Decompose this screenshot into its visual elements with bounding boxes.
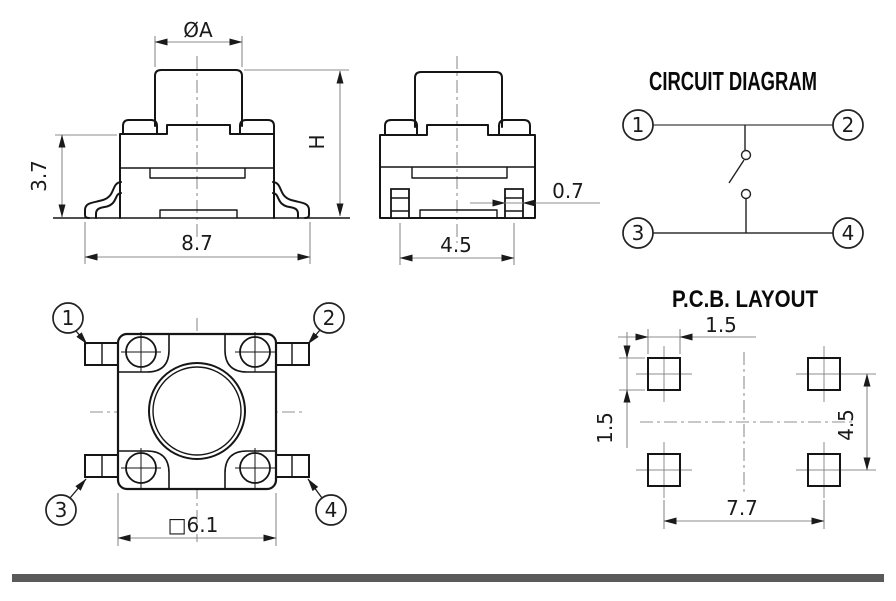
- tact-switch-datasheet-drawing: ØA 3.7 8.7 H 0.7: [0, 0, 896, 601]
- terminal-4: 4: [833, 218, 863, 248]
- terminal-2: 2: [833, 110, 863, 140]
- side-bottom-pad: [420, 210, 497, 218]
- leader-line: [308, 479, 322, 498]
- dim-total-height: H: [244, 70, 349, 216]
- side-view: 0.7 4.5: [380, 56, 600, 265]
- pcb-layout: P.C.B. LAYOUT 1.5 1.5 4.5 7.7: [593, 286, 876, 529]
- pin-callout-1: 1: [53, 303, 87, 344]
- dim-label-body-height: 3.7: [27, 160, 51, 192]
- front-plunger: [155, 70, 242, 126]
- pin-callout-3: 3: [46, 479, 86, 525]
- switch-contact-bottom: [742, 190, 751, 199]
- pin-number-label: 4: [325, 498, 338, 522]
- footer-divider-bar: [12, 574, 884, 582]
- pin-number-label: 2: [323, 306, 336, 330]
- dim-label-overall-width: 8.7: [181, 231, 213, 255]
- side-base-recess: [412, 167, 507, 178]
- dim-pad-width: 1.5: [618, 313, 756, 354]
- switch-contact-top: [742, 151, 751, 160]
- dim-horizontal-pitch: 7.7: [664, 496, 824, 529]
- terminal-label: 2: [842, 113, 855, 137]
- top-view: 1 2 3 4 □6.1: [46, 303, 346, 546]
- pin-callout-4: 4: [308, 479, 346, 525]
- dim-label-vertical-pitch: 4.5: [834, 409, 858, 441]
- terminal-label: 1: [632, 113, 645, 137]
- technical-drawing-canvas: ØA 3.7 8.7 H 0.7: [0, 0, 896, 601]
- dim-cap-diameter: ØA: [155, 18, 242, 67]
- front-bottom-pad: [160, 210, 237, 218]
- pin-number-label: 3: [55, 498, 68, 522]
- circuit-diagram: CIRCUIT DIAGRAM 1 2 3 4: [623, 66, 863, 248]
- switch-pole-lines: [729, 125, 746, 233]
- dim-label-pad-width: 1.5: [705, 313, 737, 337]
- dim-label-horizontal-pitch: 7.7: [726, 496, 758, 520]
- dim-label-pad-height: 1.5: [593, 412, 617, 444]
- terminal-label: 4: [842, 221, 855, 245]
- top-view-body: [118, 334, 276, 489]
- pin-callout-2: 2: [308, 303, 344, 344]
- dim-label-cap-diameter: ØA: [183, 18, 213, 42]
- dim-pad-height: 1.5: [593, 332, 645, 448]
- pin-number-label: 1: [62, 306, 75, 330]
- dim-label-body-size: □6.1: [168, 513, 219, 537]
- dim-label-lead-width: 0.7: [552, 179, 584, 203]
- leader-line: [308, 330, 320, 344]
- side-plunger: [415, 72, 502, 127]
- pcb-layout-title: P.C.B. LAYOUT: [672, 286, 818, 313]
- leader-line: [70, 479, 86, 498]
- dim-body-size: □6.1: [118, 493, 276, 546]
- terminal-3: 3: [623, 218, 653, 248]
- leader-line: [76, 331, 87, 344]
- terminal-label: 3: [632, 221, 645, 245]
- circuit-diagram-title: CIRCUIT DIAGRAM: [649, 66, 817, 96]
- front-cover-tabs: [123, 120, 274, 134]
- front-view: ØA 3.7 8.7 H: [27, 18, 350, 264]
- terminal-1: 1: [623, 110, 653, 140]
- dim-body-height: 3.7: [27, 135, 117, 217]
- dim-label-total-height: H: [305, 134, 329, 149]
- dim-label-lead-pitch: 4.5: [440, 233, 472, 257]
